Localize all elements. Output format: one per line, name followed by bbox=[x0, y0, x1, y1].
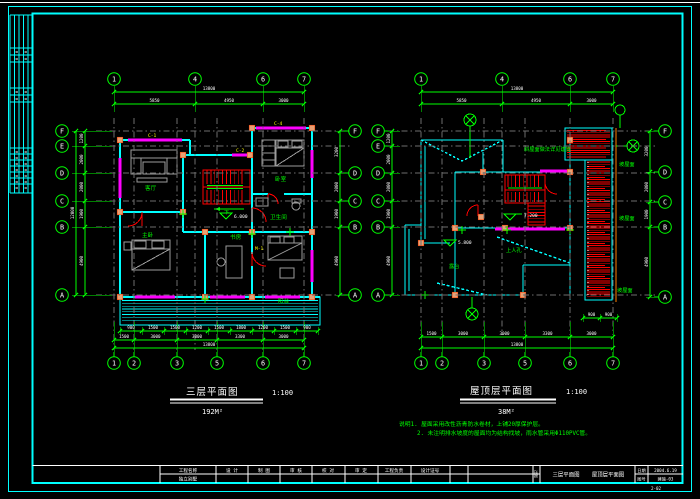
dim-text: 4950 bbox=[531, 98, 542, 103]
dim-text: 1900 bbox=[79, 208, 84, 219]
dim-text: 2000 bbox=[334, 181, 339, 192]
sheet-frame bbox=[0, 3, 700, 492]
dim-text: 900 bbox=[605, 312, 613, 317]
column bbox=[180, 152, 186, 158]
room-label-bath: 卫生间 bbox=[270, 213, 287, 221]
terrace-label: 露台 bbox=[449, 262, 459, 270]
tb-date-value: 2004.6.19 bbox=[654, 468, 677, 473]
dim-text: 13800 bbox=[511, 86, 524, 91]
dim-text: 5850 bbox=[149, 98, 160, 103]
grid-bubble-label: D bbox=[663, 168, 667, 176]
signature-text-mark bbox=[16, 188, 18, 189]
grid-bubble-label: A bbox=[663, 293, 667, 301]
signature-text-mark bbox=[16, 52, 18, 53]
column bbox=[117, 137, 123, 143]
grid-bubble-label: 6 bbox=[261, 75, 265, 83]
dim-text: 12000 bbox=[70, 206, 75, 219]
grid-bubble-label: 2 bbox=[440, 359, 444, 367]
signature-text-mark bbox=[16, 99, 18, 100]
dim-text: 3000 bbox=[278, 334, 289, 339]
grid-bubble-label: 7 bbox=[611, 75, 615, 83]
grid-bubble-label: D bbox=[60, 169, 64, 177]
roof-note: 斜屋面做法详见建施 bbox=[524, 145, 571, 153]
level-text-2: 5.800 bbox=[458, 240, 472, 246]
tb-field-label: 审 定 bbox=[355, 467, 367, 474]
dim-text: 13800 bbox=[203, 86, 216, 91]
slope-label-3: 坡屋面 bbox=[617, 286, 633, 294]
window-tag: C-4 bbox=[274, 121, 283, 127]
right-plan-title-group: 屋顶层平面图 1:100 38M² bbox=[460, 386, 587, 416]
signature-text-mark bbox=[25, 164, 27, 165]
signature-text-mark bbox=[25, 92, 27, 93]
slope-label-2: 坡屋面 bbox=[619, 214, 635, 222]
dim-text: 13800 bbox=[203, 342, 216, 347]
dim-text: 1500 bbox=[426, 331, 437, 336]
grid-bubble-label: A bbox=[60, 291, 64, 299]
grid-bubble-label: 4 bbox=[500, 75, 504, 83]
stair-direction-label: 下 bbox=[224, 210, 229, 216]
signature-text-mark bbox=[25, 59, 27, 60]
signature-text-mark bbox=[25, 188, 27, 189]
grid-bubble-label: 5 bbox=[215, 359, 219, 367]
grid-bubble-label: 7 bbox=[611, 359, 615, 367]
grid-bubble-label: 7 bbox=[302, 359, 306, 367]
tb-no-value: 建施-03 bbox=[658, 476, 674, 483]
right-plan-scale: 1:100 bbox=[566, 388, 587, 396]
signature-text-mark bbox=[16, 92, 18, 93]
grid-bubble-label: C bbox=[376, 197, 380, 205]
dim-text: 4950 bbox=[224, 98, 235, 103]
signature-text-mark bbox=[16, 164, 18, 165]
dim-text: 1800 bbox=[236, 325, 247, 330]
column bbox=[478, 214, 484, 220]
left-plan-stair bbox=[203, 170, 250, 211]
left-plan-area: 192M² bbox=[202, 408, 223, 416]
room-label-balcony: 阳台 bbox=[278, 297, 290, 305]
signature-text-mark bbox=[16, 182, 18, 183]
grid-bubble-label: F bbox=[376, 127, 380, 135]
window-tag: C-1 bbox=[148, 133, 157, 139]
tb-page: 2-02 bbox=[651, 486, 662, 491]
grid-bubble-label: 1 bbox=[112, 359, 116, 367]
room-label-study: 书房 bbox=[230, 233, 242, 241]
column bbox=[249, 125, 255, 131]
tb-date-label: 日期 bbox=[637, 468, 645, 474]
tb-field-label: 设 计 bbox=[226, 467, 238, 474]
grid-bubble-label: 7 bbox=[302, 75, 306, 83]
signature-text-mark bbox=[25, 52, 27, 53]
window-tag: C-2 bbox=[236, 148, 245, 154]
tb-field-label: 审 核 bbox=[290, 467, 302, 474]
grid-bubble-label: 4 bbox=[193, 75, 197, 83]
left-plan-scale: 1:100 bbox=[272, 389, 293, 397]
signature-text-mark bbox=[16, 170, 18, 171]
grid-bubble-label: B bbox=[376, 223, 380, 231]
tb-field-label: 制 图 bbox=[258, 467, 270, 474]
tb-field-label: 设计证号 bbox=[421, 467, 440, 474]
access-hatch-label: 上人孔 bbox=[506, 246, 522, 254]
cad-canvas: 1380058504950300014679001500150012001500… bbox=[0, 0, 700, 499]
dim-text: 1200 bbox=[386, 133, 391, 144]
grid-bubble-label: F bbox=[663, 127, 667, 135]
tb-no-label: 图号 bbox=[637, 477, 645, 483]
column bbox=[247, 152, 253, 158]
dim-text: 4900 bbox=[386, 255, 391, 266]
title-block-texts: 工程名称 独立别墅 设 计 制 图 审 核 校 对 审 定 工程负责 设计证号 … bbox=[179, 467, 678, 491]
dim-text: 1200 bbox=[79, 133, 84, 144]
dim-text: 3200 bbox=[644, 146, 649, 157]
column bbox=[452, 225, 458, 231]
column bbox=[117, 209, 123, 215]
grid-bubble-label: B bbox=[663, 223, 667, 231]
dim-text: 1900 bbox=[334, 208, 339, 219]
dim-text: 2000 bbox=[386, 181, 391, 192]
signature-text-mark bbox=[16, 152, 18, 153]
window-tag: M-1 bbox=[255, 246, 264, 252]
dim-text: 1500 bbox=[148, 325, 159, 330]
roof-notes: 说明1. 屋面采用改性沥青防水卷材，上铺20厚保护层。 2. 未注明排水坡度的屋… bbox=[399, 420, 591, 437]
dim-text: 4900 bbox=[334, 255, 339, 266]
signature-text-mark bbox=[16, 176, 18, 177]
dim-text: 3200 bbox=[334, 146, 339, 157]
tb-field-value: 独立别墅 bbox=[179, 476, 198, 483]
dim-text: 3000 bbox=[150, 334, 161, 339]
dim-text: 900 bbox=[127, 325, 135, 330]
dim-text: 2000 bbox=[79, 154, 84, 165]
right-plan-area: 38M² bbox=[498, 408, 515, 416]
slope-label-1: 坡屋面 bbox=[619, 160, 635, 168]
dim-text: 1900 bbox=[644, 209, 649, 220]
grid-bubble-label: 1 bbox=[419, 75, 423, 83]
dim-text: 3300 bbox=[542, 331, 553, 336]
signature-text-mark bbox=[16, 158, 18, 159]
dim-text: 1500 bbox=[280, 325, 291, 330]
dim-text: 1500 bbox=[170, 325, 181, 330]
signature-text-mark bbox=[25, 182, 27, 183]
dim-text: 3000 bbox=[586, 331, 597, 336]
dim-text: 3000 bbox=[458, 331, 469, 336]
roof-note-line1: 说明1. 屋面采用改性沥青防水卷材，上铺20厚保护层。 bbox=[399, 420, 544, 428]
grid-bubble-label: A bbox=[376, 291, 380, 299]
room-label-living: 客厅 bbox=[145, 184, 157, 192]
dim-text: 900 bbox=[303, 325, 311, 330]
tb-field-label: 校 对 bbox=[322, 467, 334, 474]
dim-text: 3000 bbox=[499, 331, 510, 336]
tb-field-label: 工程负责 bbox=[385, 467, 404, 474]
grid-bubble-label: D bbox=[353, 169, 357, 177]
column bbox=[309, 125, 315, 131]
grid-bubble-label: 6 bbox=[568, 359, 572, 367]
dim-text: 900 bbox=[588, 312, 596, 317]
room-label-bed1: 卧室 bbox=[275, 175, 287, 183]
dim-text: 13800 bbox=[511, 342, 524, 347]
grid-bubble-label: F bbox=[60, 127, 64, 135]
grid-bubble-label: C bbox=[353, 197, 357, 205]
tb-drawing-name-2: 屋顶层平面图 bbox=[592, 471, 624, 479]
level-text-1: 7.200 bbox=[524, 213, 538, 219]
tb-field-label: 工程名称 bbox=[179, 467, 198, 474]
grid-bubble-label: C bbox=[60, 197, 64, 205]
grid-bubble-label: 2 bbox=[132, 359, 136, 367]
grid-bubble-label: E bbox=[376, 142, 380, 150]
dim-text: 2000 bbox=[79, 181, 84, 192]
dim-text: 1900 bbox=[386, 208, 391, 219]
dim-text: 2000 bbox=[644, 181, 649, 192]
right-plan-windows bbox=[495, 171, 568, 229]
tb-stamp: 出图 bbox=[534, 470, 539, 478]
signature-text-mark bbox=[25, 170, 27, 171]
left-plan-title: 三层平面图 bbox=[186, 387, 239, 398]
grid-bubble-label: 3 bbox=[482, 359, 486, 367]
dim-text: 3000 bbox=[586, 98, 597, 103]
dim-text: 1500 bbox=[119, 334, 130, 339]
grid-bubble-label: 3 bbox=[175, 359, 179, 367]
tb-drawing-name-1: 三层平面图 bbox=[553, 471, 580, 479]
dim-text: 3000 bbox=[192, 334, 203, 339]
grid-bubble-label: 1 bbox=[112, 75, 116, 83]
dim-text: 1200 bbox=[192, 325, 203, 330]
dim-text: 3000 bbox=[278, 98, 289, 103]
dim-text: 5850 bbox=[456, 98, 467, 103]
left-plan-title-group: 三层平面图 1:100 192M² bbox=[170, 387, 293, 416]
room-label-master: 主卧 bbox=[142, 231, 154, 239]
grid-bubble-label: B bbox=[353, 223, 357, 231]
signature-text-mark bbox=[16, 59, 18, 60]
grid-bubble-label: B bbox=[60, 223, 64, 231]
grid-bubble-label: 5 bbox=[523, 359, 527, 367]
grid-bubble-label: E bbox=[60, 142, 64, 150]
column bbox=[309, 229, 315, 235]
right-plan-title: 屋顶层平面图 bbox=[470, 386, 533, 397]
dim-text: 3300 bbox=[235, 334, 246, 339]
grid-bubble-label: D bbox=[376, 169, 380, 177]
dim-text: 4900 bbox=[644, 256, 649, 267]
signature-text-mark bbox=[25, 152, 27, 153]
column bbox=[480, 169, 486, 175]
signature-text-mark bbox=[25, 158, 27, 159]
dim-text: 1500 bbox=[214, 325, 225, 330]
signature-text-mark bbox=[25, 176, 27, 177]
grid-bubble-label: 6 bbox=[568, 75, 572, 83]
column bbox=[202, 229, 208, 235]
dim-text: 1200 bbox=[258, 325, 269, 330]
grid-bubble-label: 6 bbox=[261, 359, 265, 367]
roof-note-line2: 2. 未注明排水坡度的屋面均为结构找坡，雨水管采用Φ110PVC管。 bbox=[417, 429, 591, 437]
dim-text: 4900 bbox=[79, 255, 84, 266]
signature-text-mark bbox=[25, 99, 27, 100]
grid-bubble-label: A bbox=[353, 291, 357, 299]
grid-bubble-label: F bbox=[353, 127, 357, 135]
level-text-left: 6.000 bbox=[234, 214, 248, 220]
cad-drawing-sheet: 1380058504950300014679001500150012001500… bbox=[0, 0, 700, 499]
grid-bubble-label: 1 bbox=[419, 359, 423, 367]
dim-text: 2000 bbox=[386, 154, 391, 165]
grid-bubble-label: C bbox=[663, 198, 667, 206]
